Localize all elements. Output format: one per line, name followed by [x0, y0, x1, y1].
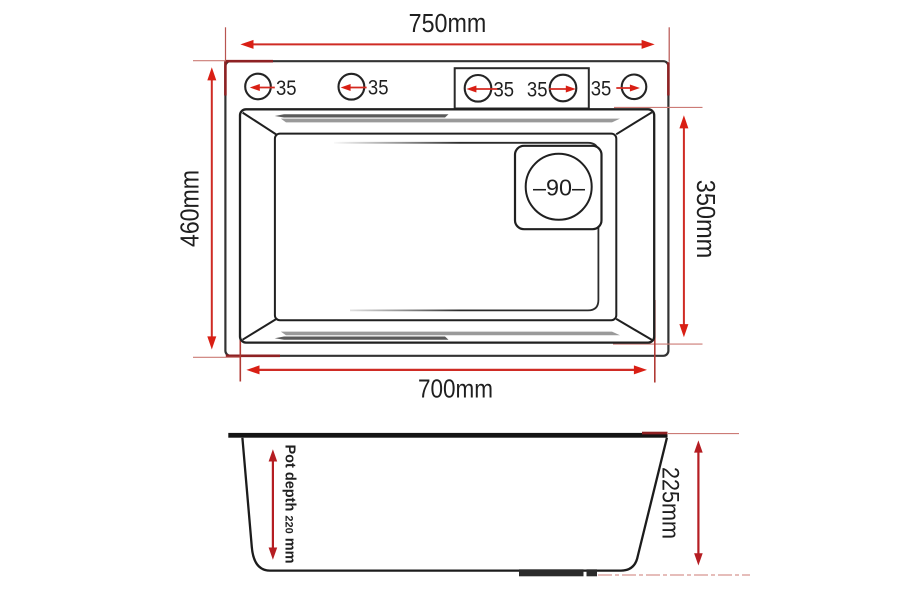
svg-text:35: 35 — [527, 77, 548, 101]
svg-text:225mm: 225mm — [657, 467, 684, 539]
svg-text:35: 35 — [368, 76, 389, 100]
svg-text:460mm: 460mm — [176, 170, 204, 247]
svg-text:700mm: 700mm — [418, 374, 493, 404]
svg-text:350mm: 350mm — [691, 180, 719, 259]
svg-text:35: 35 — [276, 76, 297, 100]
svg-text:35: 35 — [591, 76, 612, 100]
svg-text:35: 35 — [494, 77, 515, 101]
svg-text:Pot depth 220 mm: Pot depth 220 mm — [282, 444, 298, 563]
svg-text:750mm: 750mm — [409, 10, 487, 38]
svg-text:–90–: –90– — [533, 174, 586, 200]
